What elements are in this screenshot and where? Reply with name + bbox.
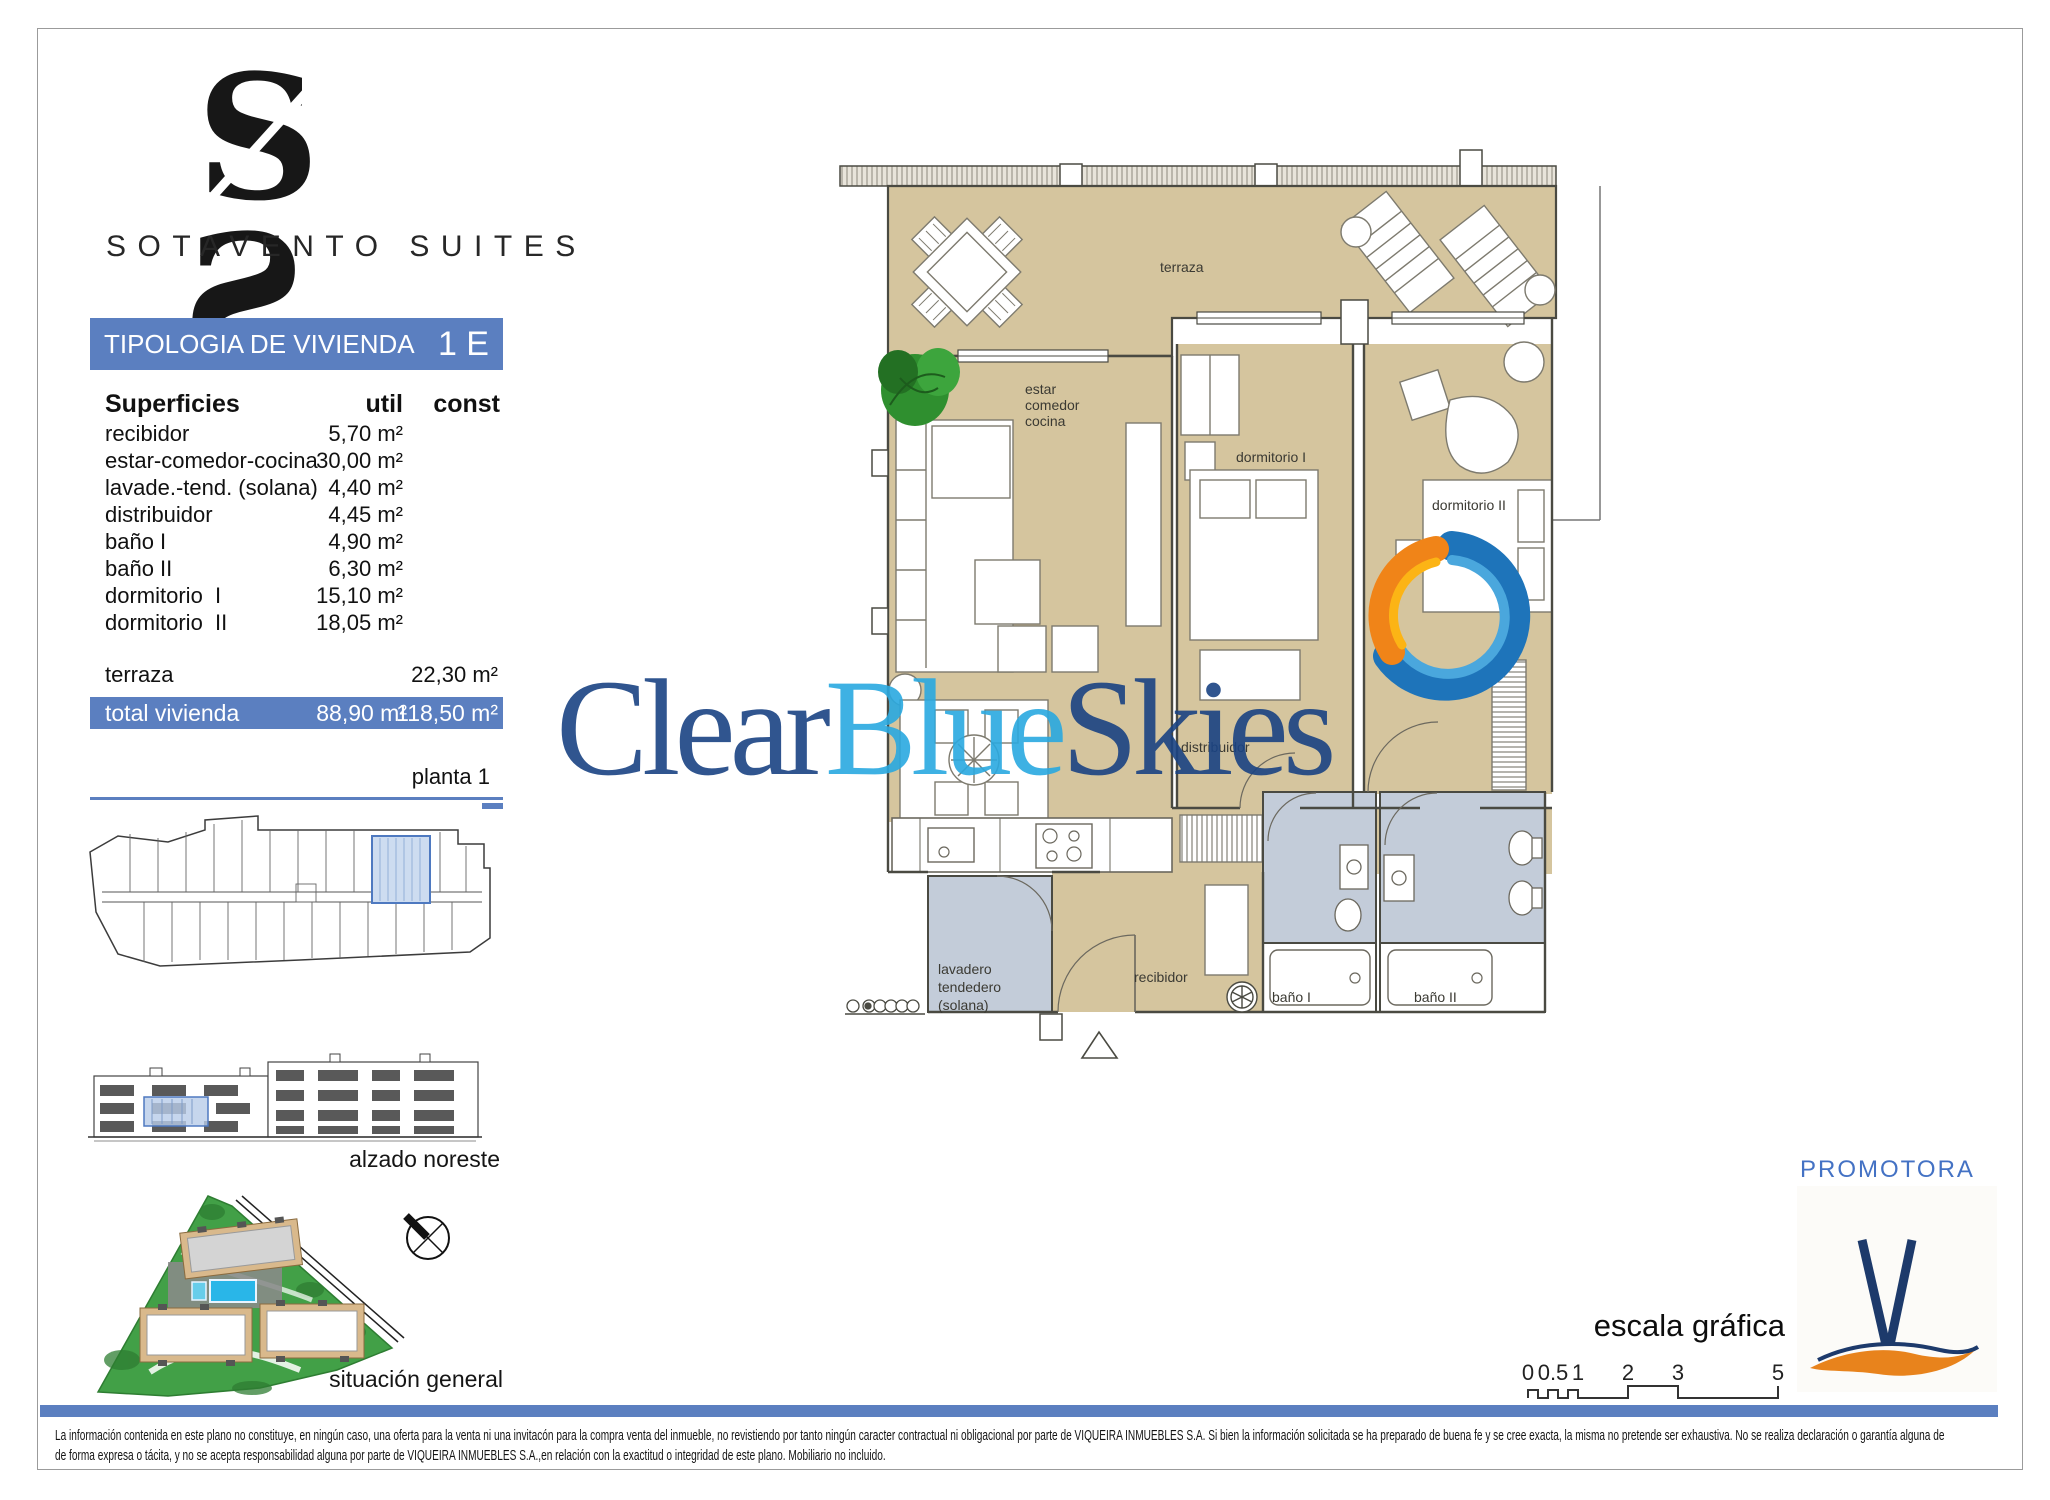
table-row: recibidor5,70 m² (90, 421, 503, 448)
col-util: util (366, 390, 404, 419)
svg-text:cocina: cocina (1025, 413, 1066, 429)
site-building-southeast (260, 1300, 364, 1362)
typology-unit: 1 E (438, 318, 489, 370)
brand-name: SOTAVENTO SUITES (106, 230, 587, 264)
site-pool (210, 1280, 256, 1302)
kitchen-counter (892, 818, 1172, 872)
watermark-skies: Skies (1061, 651, 1330, 804)
watermark-clear: Clear (556, 651, 825, 804)
room-label-dormitorio1: dormitorio I (1236, 449, 1306, 465)
scale-label: escala gráfica (1500, 1308, 1785, 1344)
table-row: lavade.-tend. (solana)4,40 m² (90, 475, 503, 502)
brand-monogram: SS (196, 58, 416, 223)
solana-railing (845, 1000, 925, 1014)
viqueira-logo-icon (1797, 1186, 1997, 1392)
table-row: baño II6,30 m² (90, 556, 503, 583)
surfaces-header: Superficies util const (90, 390, 503, 420)
divider-rule (90, 797, 503, 800)
typology-header: TIPOLOGIA DE VIVIENDA 1 E (90, 318, 503, 370)
table-row: dormitorio II18,05 m² (90, 610, 503, 637)
footer-divider (40, 1405, 1998, 1417)
room-label-bano2: baño II (1414, 989, 1457, 1005)
siteplan-label: situación general (103, 1366, 503, 1393)
watermark: ClearBlueSkies (556, 648, 1331, 807)
total-row: total vivienda 88,90 m² 118,50 m² (90, 697, 503, 729)
promoter-label: PROMOTORA (1800, 1156, 1975, 1184)
compass-north-icon (406, 1216, 449, 1259)
table-row: distribuidor4,45 m² (90, 502, 503, 529)
typology-title: TIPOLOGIA DE VIVIENDA (104, 318, 415, 370)
elevation-label: alzado noreste (100, 1146, 500, 1173)
svg-text:tendedero: tendedero (938, 979, 1001, 995)
room-label-lavadero: lavadero (938, 961, 992, 977)
svg-text:(solana): (solana) (938, 997, 989, 1013)
disclaimer-line2: de forma expresa o tácita, y no se acept… (55, 1447, 1369, 1464)
highlighted-unit (372, 836, 430, 903)
site-building-southwest (140, 1304, 252, 1366)
hall-symbol (1227, 982, 1257, 1012)
table-row: estar-comedor-cocina30,00 m² (90, 448, 503, 475)
svg-text:comedor: comedor (1025, 397, 1080, 413)
table-row: dormitorio I15,10 m² (90, 583, 503, 610)
plan-sheet: SS SOTAVENTO SUITES TIPOLOGIA DE VIVIEND… (0, 0, 2050, 1500)
floor-label: planta 1 (90, 764, 490, 790)
col-const: const (433, 390, 500, 419)
room-label-terraza: terraza (1160, 259, 1204, 275)
room-label-recibidor: recibidor (1134, 969, 1188, 985)
key-plan-drawing (80, 808, 500, 1008)
room-label-bano1: baño I (1272, 989, 1311, 1005)
room-label-estar: estar (1025, 381, 1056, 397)
room-label-dormitorio2: dormitorio II (1432, 497, 1506, 513)
floor-plan-drawing: terraza estar comedor cocina dormitorio … (820, 130, 1620, 1090)
surfaces-title: Superficies (105, 390, 240, 419)
entrance-marker-icon (1082, 1032, 1117, 1058)
watermark-blue: Blue (825, 651, 1062, 804)
table-row: baño I4,90 m² (90, 529, 503, 556)
table-row: terraza22,30 m² (90, 662, 503, 689)
disclaimer-line1: La información contenida en este plano n… (55, 1427, 1369, 1444)
highlighted-unit-elevation (144, 1097, 208, 1126)
elevation-drawing (80, 1050, 500, 1145)
